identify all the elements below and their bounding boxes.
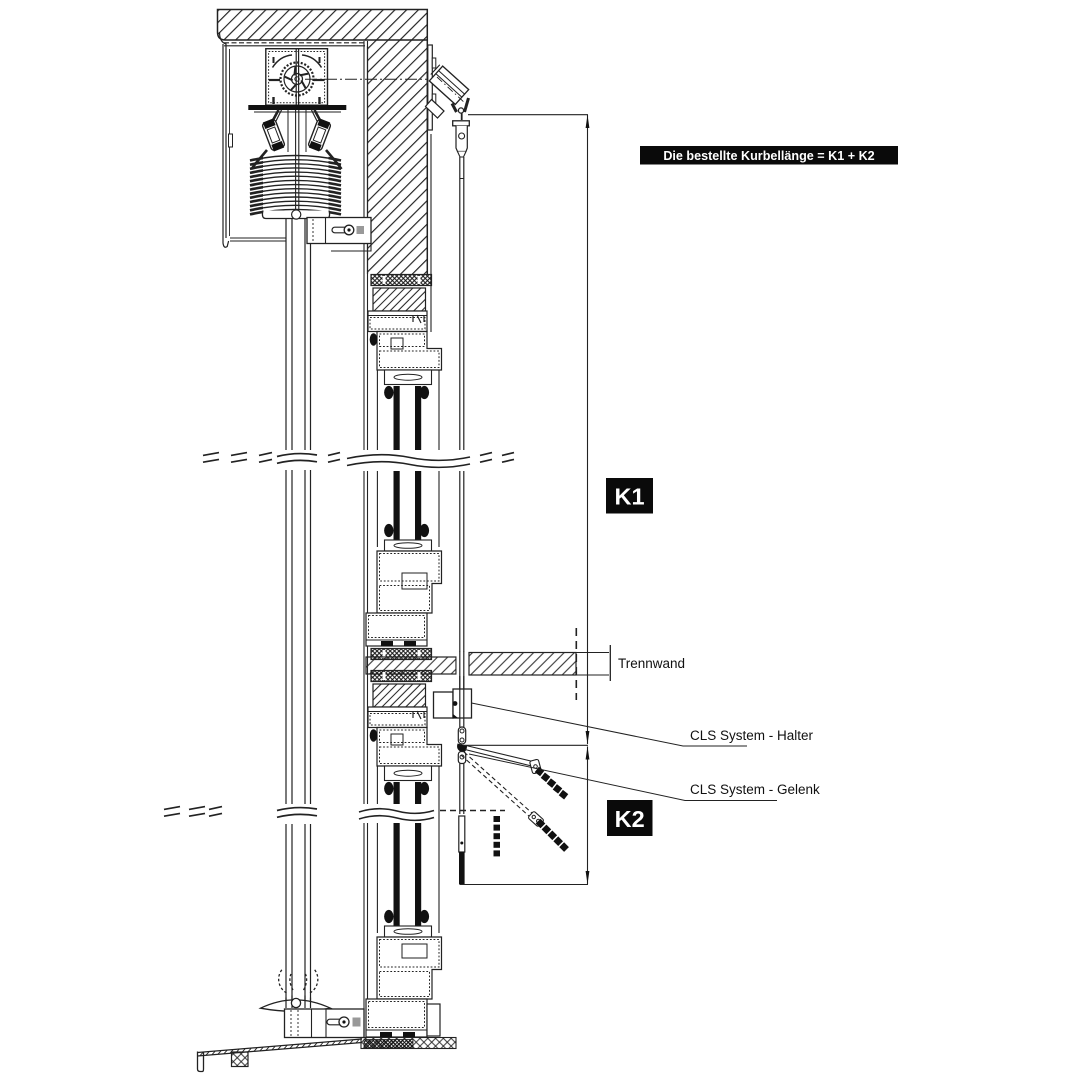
svg-text:K1: K1 bbox=[614, 484, 644, 510]
svg-text:CLS System - Halter: CLS System - Halter bbox=[690, 728, 814, 743]
svg-text:Trennwand: Trennwand bbox=[618, 656, 685, 671]
svg-text:CLS System - Gelenk: CLS System - Gelenk bbox=[690, 782, 820, 797]
svg-text:K2: K2 bbox=[615, 806, 645, 832]
svg-text:Die bestellte Kurbellänge = K1: Die bestellte Kurbellänge = K1 + K2 bbox=[663, 149, 874, 163]
